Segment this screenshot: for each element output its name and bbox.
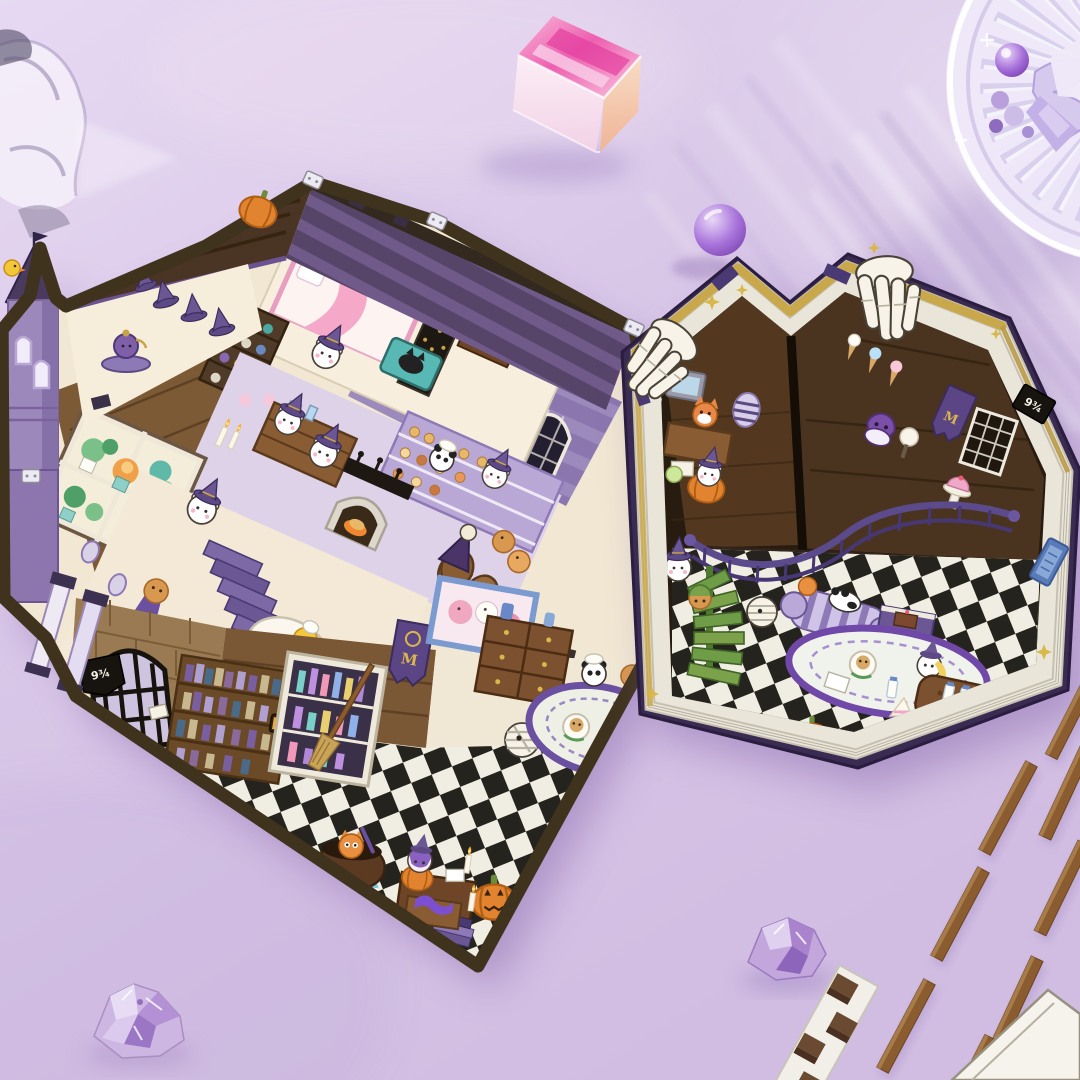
banner-house-initial: M — [400, 649, 419, 670]
prism-shadow — [480, 148, 630, 182]
mummy-character — [747, 597, 777, 627]
tower-window — [16, 337, 31, 364]
tower-window — [34, 361, 49, 388]
product-photo: 9¾ — [0, 0, 1080, 1080]
metal-clasp — [22, 470, 40, 483]
green-hood-bear — [689, 585, 711, 609]
panda-chef — [582, 654, 607, 686]
